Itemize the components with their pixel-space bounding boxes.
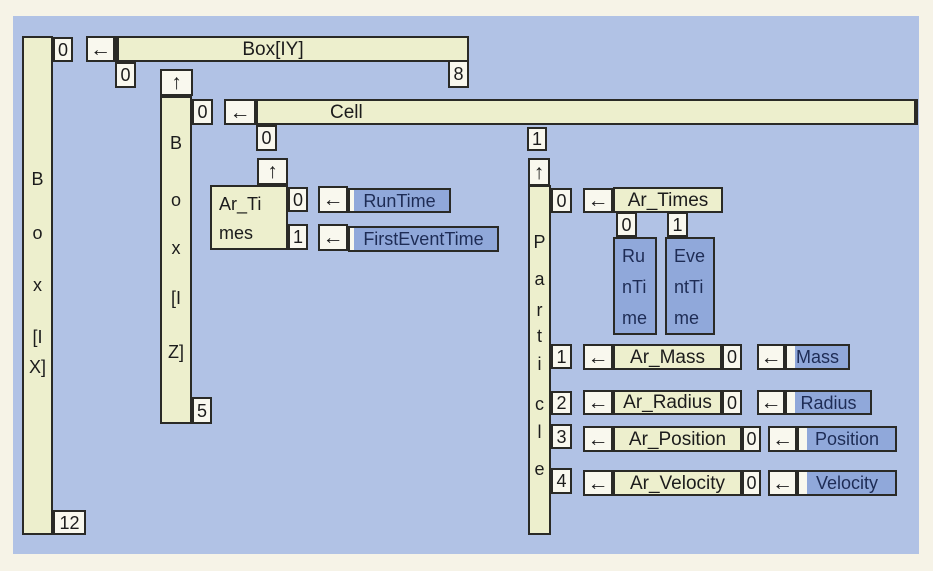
ar-velocity-label: Ar_Velocity	[630, 474, 725, 493]
ar-radius-index: 0	[722, 390, 742, 415]
arrow-glyph: ↑	[171, 72, 182, 93]
index-value: 0	[261, 129, 271, 147]
runtime-column-line: me	[622, 309, 647, 327]
diagram-canvas: B o x [I X] 0 12 ← Box[IY] 0 8 ↑ B o x […	[0, 0, 933, 571]
index-value: 0	[120, 66, 130, 84]
box-ix-letter: o	[24, 224, 51, 242]
cell-index-0: 0	[256, 125, 277, 151]
ar-times-index-0: 0	[616, 212, 637, 237]
index-value: 5	[197, 402, 207, 420]
cell-left-arrow-icon: ←	[224, 99, 256, 125]
box-iy-label: Box[IY]	[242, 40, 303, 59]
ar-mass-index: 0	[722, 344, 742, 370]
position-box: Position	[797, 426, 897, 452]
arrow-glyph: ←	[323, 227, 344, 248]
particle-index-0: 0	[551, 188, 572, 213]
box-iz-letter: o	[162, 191, 190, 209]
box-ix-bar: B o x [I X]	[22, 36, 53, 535]
ar-radius-arrow-icon: ←	[583, 390, 613, 415]
particle-index-4: 4	[551, 468, 572, 494]
index-value: 8	[453, 65, 463, 83]
runtime-column-line: nTi	[622, 278, 646, 296]
firsteventtime-arrow-icon: ←	[318, 224, 348, 251]
mass-box: Mass	[785, 344, 850, 370]
arrow-glyph: ←	[772, 473, 793, 494]
velocity-box: Velocity	[797, 470, 897, 496]
arrow-glyph: ←	[588, 429, 609, 450]
ar-mass-label: Ar_Mass	[630, 348, 705, 367]
runtime-box: RunTime	[348, 188, 451, 213]
index-value: 2	[556, 394, 566, 412]
firsteventtime-label: FirstEventTime	[363, 230, 483, 248]
ar-radius-label: Ar_Radius	[623, 393, 712, 412]
ar-mass-arrow-icon: ←	[583, 344, 613, 370]
particle-letter: e	[530, 460, 549, 478]
index-value: 1	[556, 348, 566, 366]
box-ix-letter: [I	[24, 328, 51, 346]
firsteventtime-box: FirstEventTime	[348, 226, 499, 252]
position-label: Position	[815, 430, 879, 448]
particle-index-3: 3	[551, 424, 572, 449]
index-value: 12	[59, 514, 79, 532]
mass-label: Mass	[796, 348, 839, 366]
particle-index-1: 1	[551, 344, 572, 369]
particle-letter: P	[530, 233, 549, 251]
box-ix-letter: x	[24, 276, 51, 294]
radius-arrow-icon: ←	[757, 390, 785, 415]
box-ix-index-bottom: 12	[53, 510, 86, 535]
box-iz-index-bottom: 5	[192, 397, 212, 424]
particle-letter: a	[530, 270, 549, 288]
runtime-arrow-icon: ←	[318, 186, 348, 213]
box-iz-letter: Z]	[162, 343, 190, 361]
box-iy-index-right: 8	[448, 60, 469, 88]
index-value: 1	[293, 228, 303, 246]
index-value: 1	[672, 216, 682, 234]
arrow-glyph: ←	[761, 347, 782, 368]
box-ix-letter: B	[24, 170, 51, 188]
ar-times-cell-label-line: Ar_Ti	[219, 195, 261, 213]
ar-velocity-arrow-icon: ←	[583, 470, 613, 496]
ar-times-arrow-icon: ←	[583, 188, 613, 213]
index-value: 4	[556, 472, 566, 490]
box-iz-letter: [I	[162, 289, 190, 307]
ar-radius-box: Ar_Radius	[613, 390, 722, 415]
ar-times-cell-up-arrow-icon: ↑	[257, 158, 288, 185]
radius-label: Radius	[800, 394, 856, 412]
runtime-column-line: Ru	[622, 247, 645, 265]
index-value: 0	[58, 41, 68, 59]
arrow-glyph: ←	[90, 39, 111, 60]
arrow-glyph: ←	[588, 473, 609, 494]
ar-position-box: Ar_Position	[613, 426, 742, 452]
ar-times-cell-label-line: mes	[219, 224, 253, 242]
index-value: 0	[293, 191, 303, 209]
index-value: 0	[621, 216, 631, 234]
velocity-label: Velocity	[816, 474, 878, 492]
particle-letter: i	[530, 355, 549, 373]
eventtime-column-line: me	[674, 309, 699, 327]
index-value: 0	[746, 430, 756, 448]
arrow-glyph: ←	[588, 190, 609, 211]
index-value: 0	[746, 474, 756, 492]
mass-arrow-icon: ←	[757, 344, 785, 370]
box-iy-index-left: 0	[115, 62, 136, 88]
velocity-arrow-icon: ←	[768, 470, 797, 496]
box-iy-bar: Box[IY]	[115, 36, 469, 62]
ar-times-cell-index-1: 1	[288, 224, 308, 250]
arrow-glyph: ↑	[534, 162, 545, 183]
particle-letter: r	[530, 301, 549, 319]
particle-letter: c	[530, 395, 549, 413]
ar-mass-box: Ar_Mass	[613, 344, 722, 370]
radius-box: Radius	[785, 390, 872, 415]
index-value: 0	[727, 394, 737, 412]
box-ix-index-top: 0	[53, 37, 73, 62]
box-iz-letter: x	[162, 239, 190, 257]
arrow-glyph: ←	[588, 347, 609, 368]
arrow-glyph: ←	[323, 189, 344, 210]
cell-label: Cell	[330, 103, 363, 122]
eventtime-column-line: ntTi	[674, 278, 703, 296]
box-iz-letter: B	[162, 134, 190, 152]
box-iz-index-top: 0	[192, 99, 213, 125]
box-iz-bar: B o x [I Z]	[160, 96, 192, 424]
eventtime-column-line: Eve	[674, 247, 705, 265]
ar-velocity-box: Ar_Velocity	[613, 470, 742, 496]
ar-times-cell-index-0: 0	[288, 187, 308, 212]
index-value: 0	[727, 348, 737, 366]
arrow-glyph: ←	[230, 102, 251, 123]
runtime-label: RunTime	[363, 192, 435, 210]
box-ix-letter: X]	[24, 358, 51, 376]
box-iz-up-arrow-icon: ↑	[160, 69, 193, 96]
ar-times-box: Ar_Times	[613, 187, 723, 213]
arrow-glyph: ←	[761, 392, 782, 413]
arrow-glyph: ↑	[267, 161, 278, 182]
ar-position-index: 0	[742, 426, 761, 452]
arrow-glyph: ←	[588, 392, 609, 413]
index-value: 0	[197, 103, 207, 121]
position-arrow-icon: ←	[768, 426, 797, 452]
ar-times-label: Ar_Times	[628, 191, 709, 210]
index-value: 3	[556, 428, 566, 446]
runtime-column-box: Ru nTi me	[613, 237, 657, 335]
particle-letter: l	[530, 423, 549, 441]
ar-position-arrow-icon: ←	[583, 426, 613, 452]
ar-velocity-index: 0	[742, 470, 761, 496]
particle-bar: P a r t i c l e	[528, 185, 551, 535]
cell-bar: Cell	[256, 99, 918, 125]
index-value: 1	[532, 130, 542, 148]
particle-index-2: 2	[551, 391, 572, 415]
eventtime-column-box: Eve ntTi me	[665, 237, 715, 335]
cell-index-1: 1	[527, 127, 547, 151]
particle-up-arrow-icon: ↑	[528, 158, 550, 186]
ar-times-cell-box: Ar_Ti mes	[210, 185, 288, 250]
arrow-glyph: ←	[772, 429, 793, 450]
ar-times-index-1: 1	[667, 212, 688, 237]
ar-position-label: Ar_Position	[629, 430, 726, 449]
index-value: 0	[556, 192, 566, 210]
box-iy-left-arrow-icon: ←	[86, 36, 115, 62]
particle-letter: t	[530, 327, 549, 345]
